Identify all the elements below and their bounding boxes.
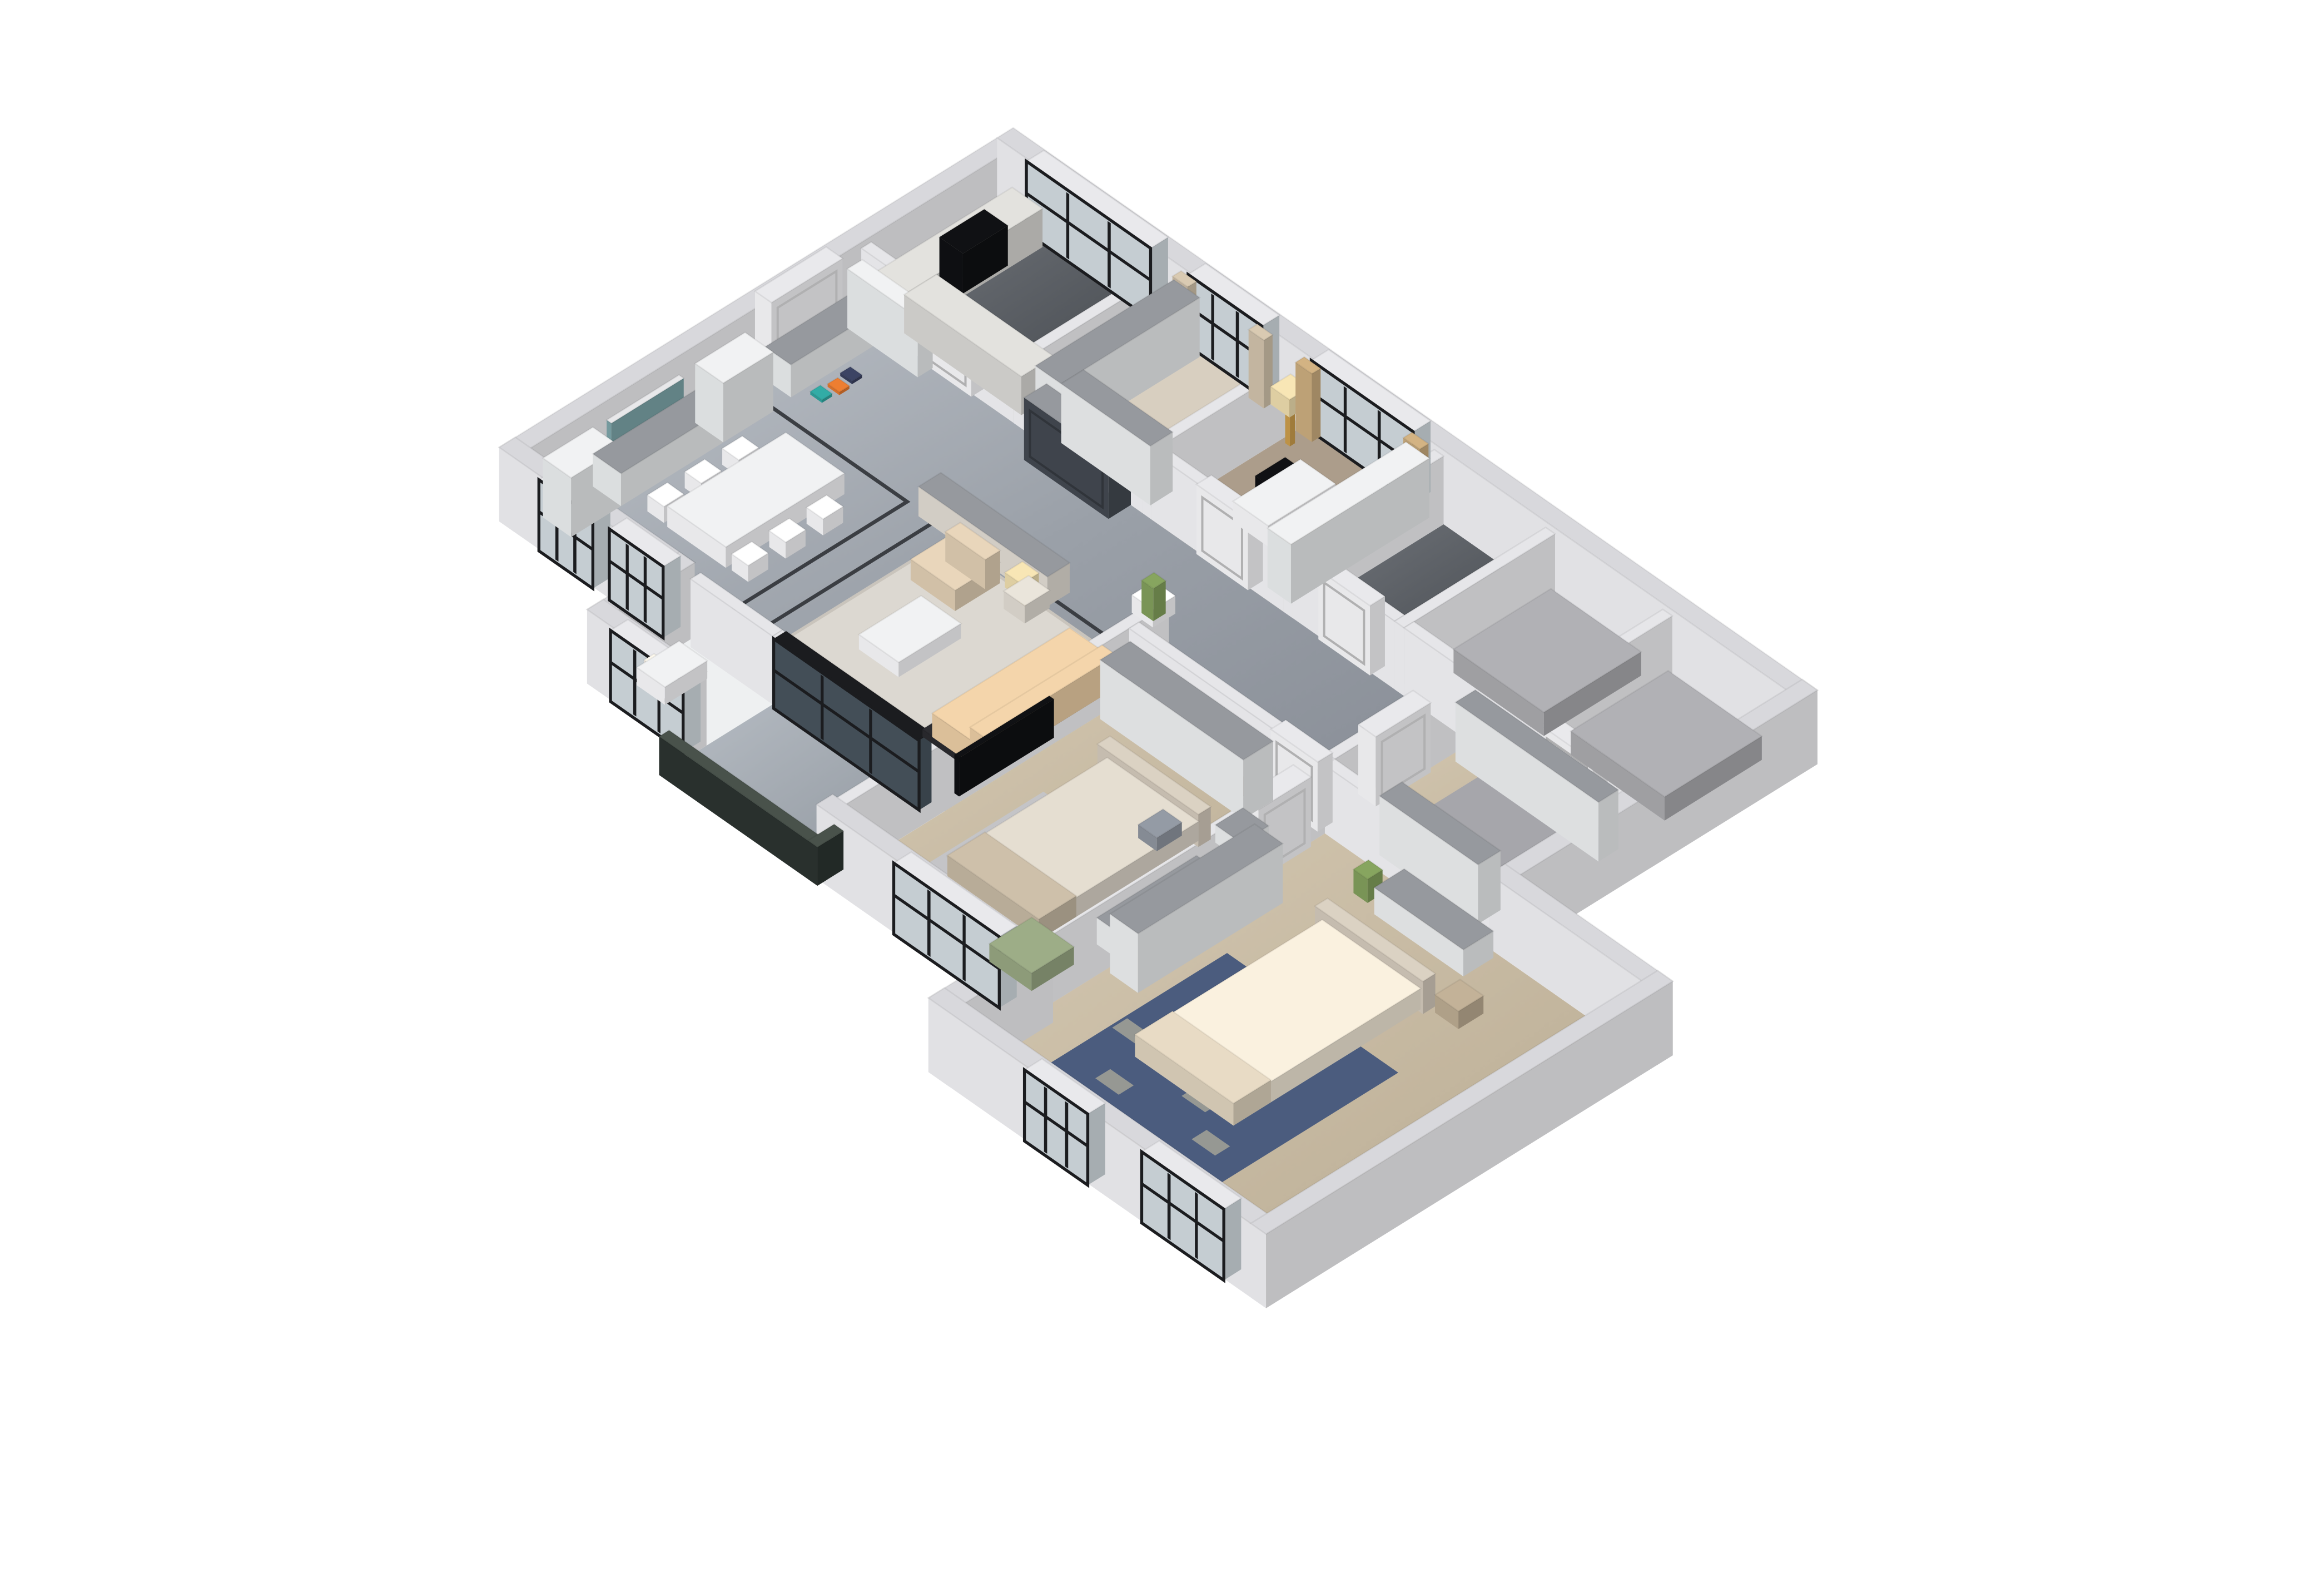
curtain [1249,324,1273,409]
floor-plan-3d-render [0,0,2324,1588]
plant [1141,573,1165,621]
floor-plan-stage: 3D isometric dollhouse render of a three… [0,0,2324,1588]
curtain [1295,357,1320,442]
